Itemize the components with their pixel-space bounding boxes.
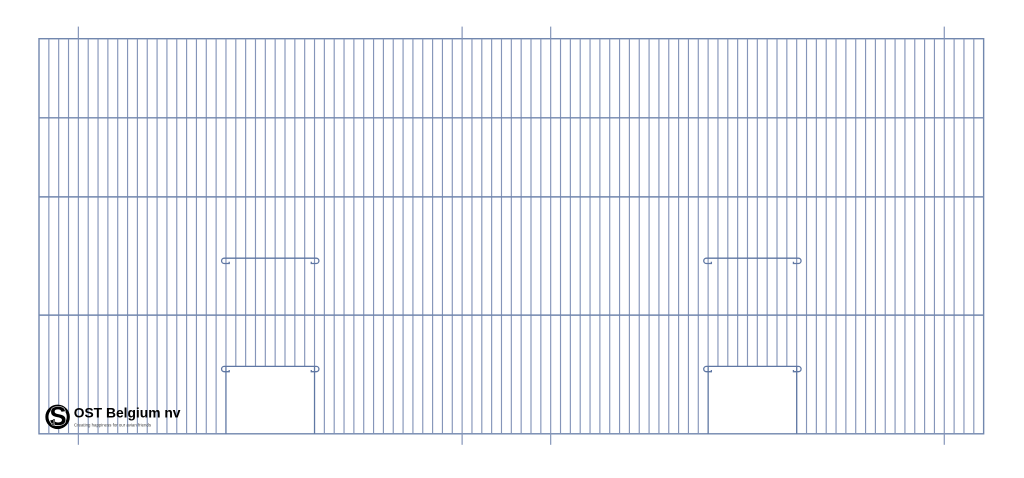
svg-text:OST Belgium nv: OST Belgium nv <box>74 405 181 421</box>
svg-text:J: J <box>51 418 55 427</box>
svg-text:Creating happiness for our avi: Creating happiness for our avian friends <box>74 423 152 428</box>
